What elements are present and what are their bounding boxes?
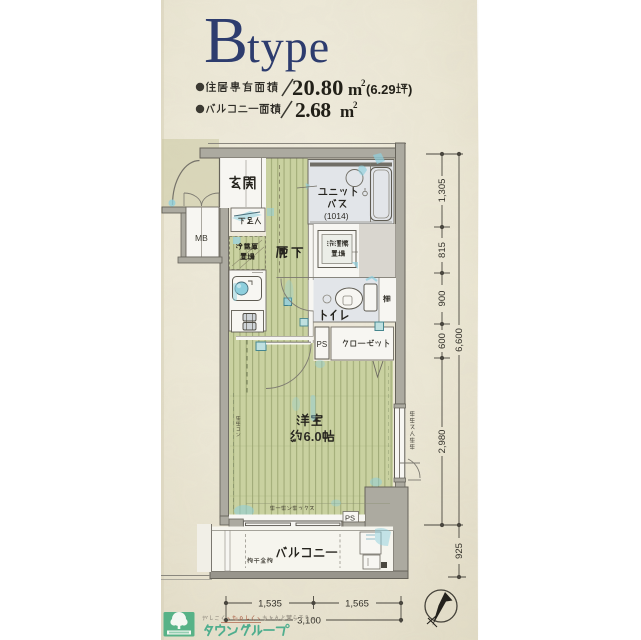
svg-text:(1014): (1014) bbox=[324, 211, 349, 221]
svg-text:600: 600 bbox=[437, 333, 448, 349]
svg-text:925: 925 bbox=[454, 543, 465, 559]
svg-text:6.0: 6.0 bbox=[304, 429, 322, 444]
svg-text:1,565: 1,565 bbox=[345, 599, 369, 610]
svg-text:2: 2 bbox=[353, 100, 358, 110]
svg-text:900: 900 bbox=[437, 291, 448, 307]
svg-text:1,535: 1,535 bbox=[258, 599, 282, 610]
svg-text:type: type bbox=[247, 21, 330, 72]
svg-text:20.80: 20.80 bbox=[292, 75, 344, 100]
svg-text:B: B bbox=[204, 4, 248, 77]
svg-text:(6.29: (6.29 bbox=[366, 82, 396, 97]
svg-text:): ) bbox=[408, 82, 412, 97]
svg-text:1,305: 1,305 bbox=[437, 179, 448, 203]
svg-text:PS: PS bbox=[317, 340, 328, 349]
svg-text:2.68: 2.68 bbox=[295, 98, 331, 122]
svg-text:815: 815 bbox=[437, 242, 448, 258]
svg-text:MB: MB bbox=[195, 233, 208, 243]
svg-text:6,600: 6,600 bbox=[454, 328, 465, 352]
svg-text:2,980: 2,980 bbox=[437, 430, 448, 454]
svg-text:PS: PS bbox=[345, 514, 355, 523]
